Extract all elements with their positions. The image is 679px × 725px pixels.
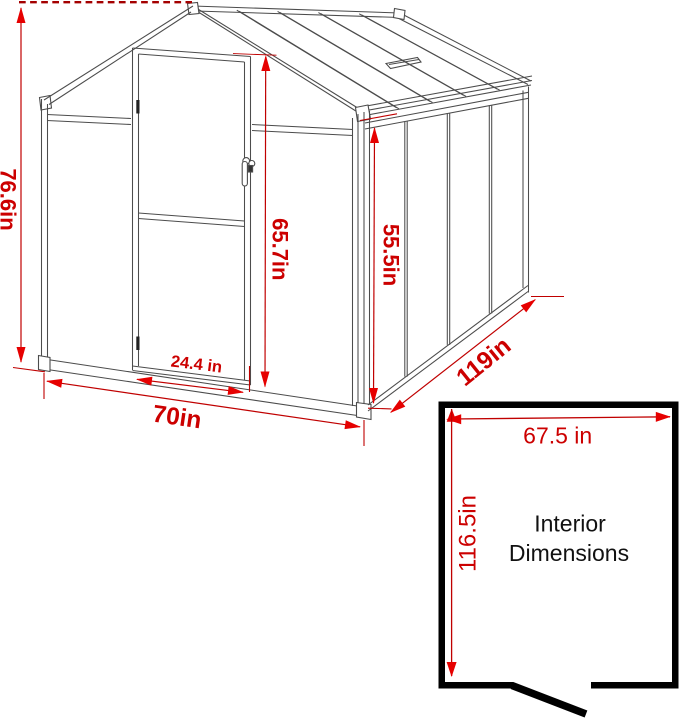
- svg-text:24.4 in: 24.4 in: [170, 352, 223, 376]
- svg-text:67.5 in: 67.5 in: [523, 423, 592, 449]
- svg-text:116.5in: 116.5in: [455, 495, 482, 572]
- svg-text:76.6in: 76.6in: [0, 168, 20, 230]
- svg-text:Dimensions: Dimensions: [509, 540, 629, 566]
- svg-text:55.5in: 55.5in: [379, 224, 404, 286]
- svg-text:65.7in: 65.7in: [268, 218, 293, 280]
- svg-text:Interior: Interior: [534, 511, 606, 537]
- svg-text:70in: 70in: [151, 401, 203, 435]
